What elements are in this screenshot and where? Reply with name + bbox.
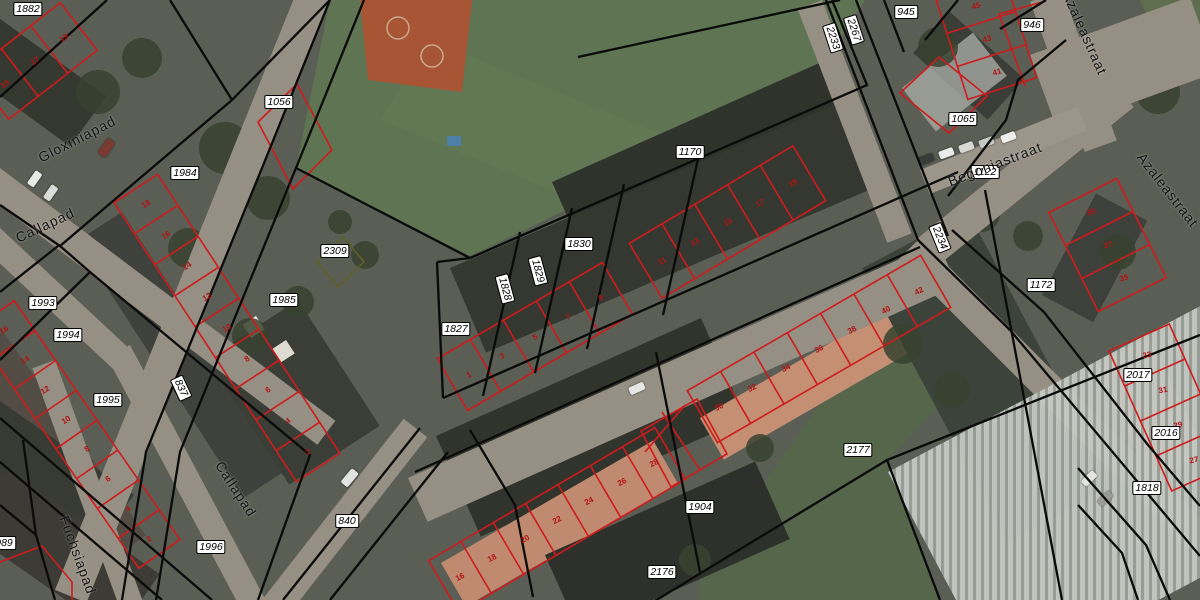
aerial-cadastral-map[interactable]: 1816141210864219171516141210864213579111… <box>0 0 1200 600</box>
parcel-lines-layer <box>0 0 1200 600</box>
